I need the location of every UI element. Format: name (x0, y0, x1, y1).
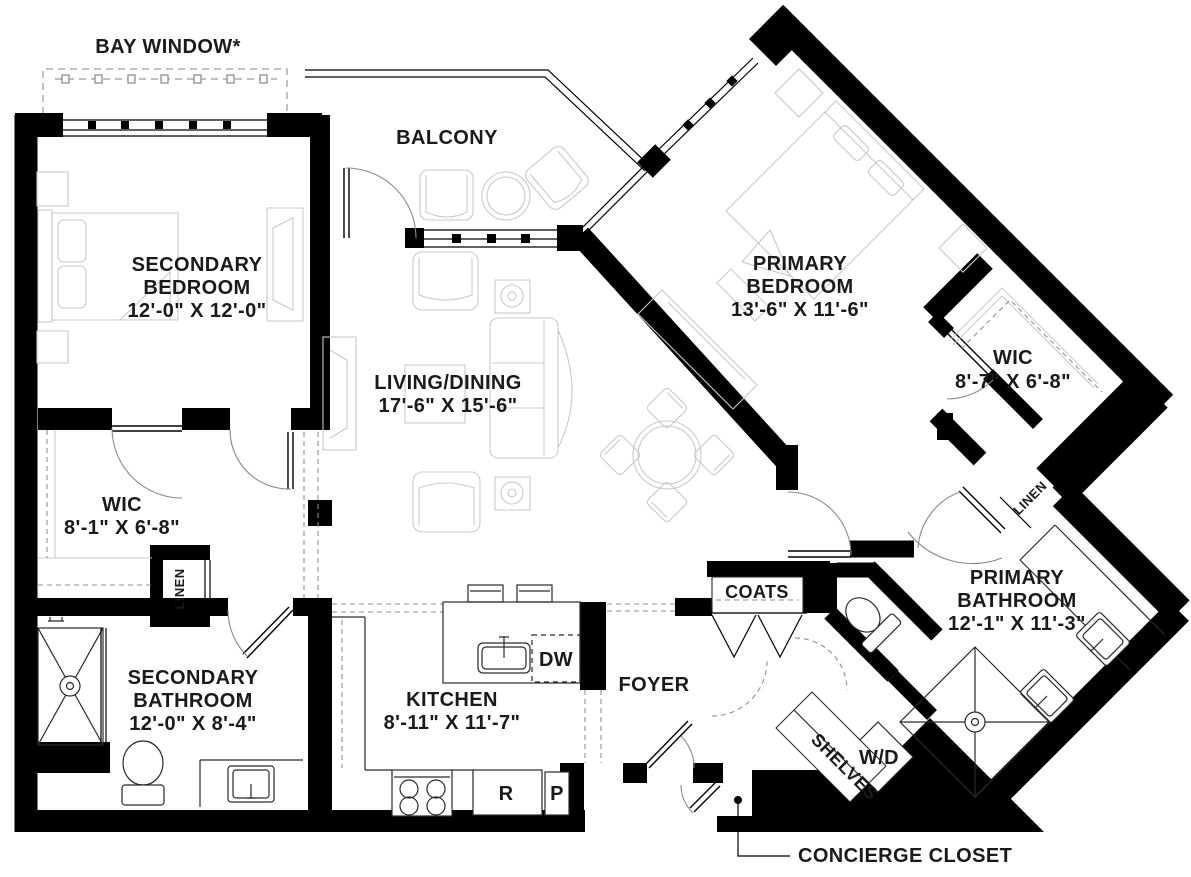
primary-bedroom-label: PRIMARY BEDROOM 13'-6" X 11'-6" (731, 253, 869, 321)
svg-text:LIVING/DINING: LIVING/DINING (374, 372, 521, 394)
svg-text:SECONDARY: SECONDARY (128, 667, 259, 689)
secondary-bedroom-label: SECONDARY BEDROOM 12'-0" X 12'-0" (128, 254, 267, 322)
svg-text:13'-6" X 11'-6": 13'-6" X 11'-6" (731, 299, 869, 321)
bed-secondary (38, 210, 52, 322)
stool (468, 585, 503, 602)
pantry-label: P (550, 783, 564, 805)
svg-text:8'-11" X 11'-7": 8'-11" X 11'-7" (384, 712, 521, 734)
linen-left-label: LINEN (172, 569, 187, 610)
refrigerator-label: R (499, 783, 514, 805)
svg-text:8'-7" X 6'-8": 8'-7" X 6'-8" (955, 371, 1071, 393)
svg-text:BEDROOM: BEDROOM (746, 276, 853, 298)
svg-text:12'-1" X 11'-3": 12'-1" X 11'-3" (948, 613, 1086, 635)
svg-text:BEDROOM: BEDROOM (143, 277, 250, 299)
toilet-secondary (123, 741, 163, 785)
svg-text:17'-6" X 15'-6": 17'-6" X 15'-6" (379, 395, 518, 417)
svg-text:12'-0" X 8'-4": 12'-0" X 8'-4" (129, 713, 256, 735)
concierge-marker (734, 796, 742, 804)
svg-text:12'-0" X 12'-0": 12'-0" X 12'-0" (128, 300, 267, 322)
wic-left-label: WIC 8'-1" X 6'-8" (64, 494, 180, 539)
svg-text:PRIMARY: PRIMARY (970, 567, 1065, 589)
svg-text:PRIMARY: PRIMARY (753, 253, 848, 275)
balcony-label: BALCONY (396, 127, 498, 149)
foyer-label: FOYER (619, 674, 690, 696)
dishwasher-label: DW (539, 649, 573, 671)
balcony-railing (305, 70, 650, 171)
svg-text:BATHROOM: BATHROOM (133, 690, 252, 712)
primary-bathroom-label: PRIMARY BATHROOM 12'-1" X 11'-3" (948, 567, 1086, 635)
svg-text:WIC: WIC (993, 347, 1033, 369)
nightstand (775, 69, 823, 117)
stool (517, 585, 552, 602)
bay-window-label: BAY WINDOW* (95, 36, 241, 58)
kitchen-label: KITCHEN 8'-11" X 11'-7" (384, 689, 521, 734)
dining-table (633, 421, 701, 489)
secondary-bathroom-label: SECONDARY BATHROOM 12'-0" X 8'-4" (128, 667, 259, 735)
armchair (413, 252, 478, 310)
armchair (413, 472, 480, 532)
svg-text:BATHROOM: BATHROOM (957, 590, 1076, 612)
dining-chairs (599, 387, 735, 523)
dresser-secondary (267, 208, 303, 321)
concierge-closet-label: CONCIERGE CLOSET (798, 845, 1012, 867)
washer-dryer-label: W/D (859, 747, 899, 769)
floor-plan-svg: BAY WINDOW* BALCONY SECONDARY BEDROOM 12… (0, 0, 1191, 877)
coats-label: COATS (725, 582, 789, 602)
svg-text:8'-1" X 6'-8": 8'-1" X 6'-8" (64, 517, 180, 539)
wic-right-label: WIC 8'-7" X 6'-8" (955, 347, 1071, 393)
svg-text:KITCHEN: KITCHEN (406, 689, 498, 711)
nightstand (37, 331, 68, 363)
svg-text:WIC: WIC (102, 494, 142, 516)
balcony-table (482, 172, 530, 220)
bay-window-outline (43, 69, 287, 114)
living-dining-label: LIVING/DINING 17'-6" X 15'-6" (374, 372, 521, 417)
floor-plan: BAY WINDOW* BALCONY SECONDARY BEDROOM 12… (0, 0, 1191, 877)
svg-text:SECONDARY: SECONDARY (132, 254, 263, 276)
nightstand (37, 172, 68, 206)
